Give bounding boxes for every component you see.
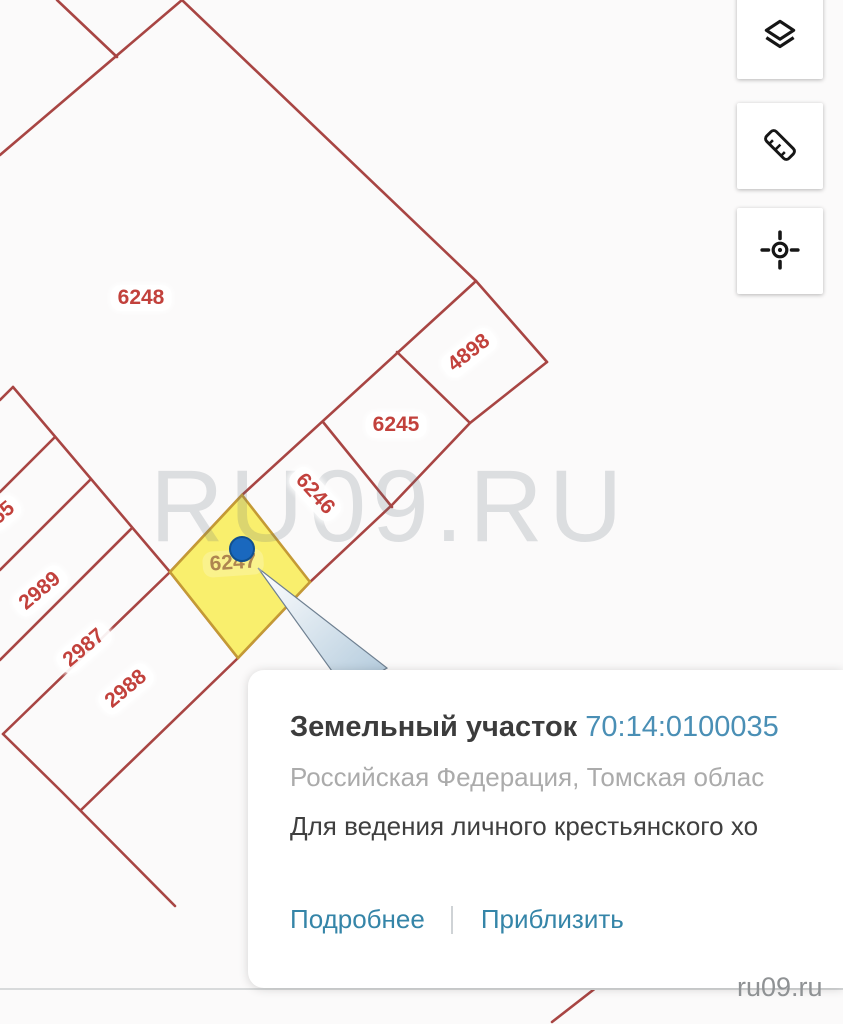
map-bottom-divider [0,988,843,990]
popup-title: Земельный участок [290,711,577,743]
parcel-info-popup: Земельный участок 70:14:0100035 Российск… [248,670,843,988]
site-watermark: ru09.ru [737,972,823,1003]
ruler-button[interactable] [737,103,823,189]
cadastral-number-link[interactable]: 70:14:0100035 [585,711,779,743]
parcel-usage: Для ведения личного крестьянского хо [290,811,843,842]
layers-button[interactable] [737,0,823,79]
popup-actions: Подробнее Приблизить [290,904,843,935]
details-link[interactable]: Подробнее [290,904,425,935]
layers-icon [759,14,801,59]
my-location-icon [759,229,801,274]
zoom-to-link[interactable]: Приблизить [481,904,624,935]
actions-divider [451,906,453,934]
ruler-icon [759,124,801,169]
selected-parcel[interactable] [170,495,310,658]
parcel-address: Российская Федерация, Томская облас [290,762,843,793]
popup-title-row: Земельный участок 70:14:0100035 [290,710,843,744]
selected-parcel-marker[interactable] [229,536,255,562]
locate-button[interactable] [737,208,823,294]
